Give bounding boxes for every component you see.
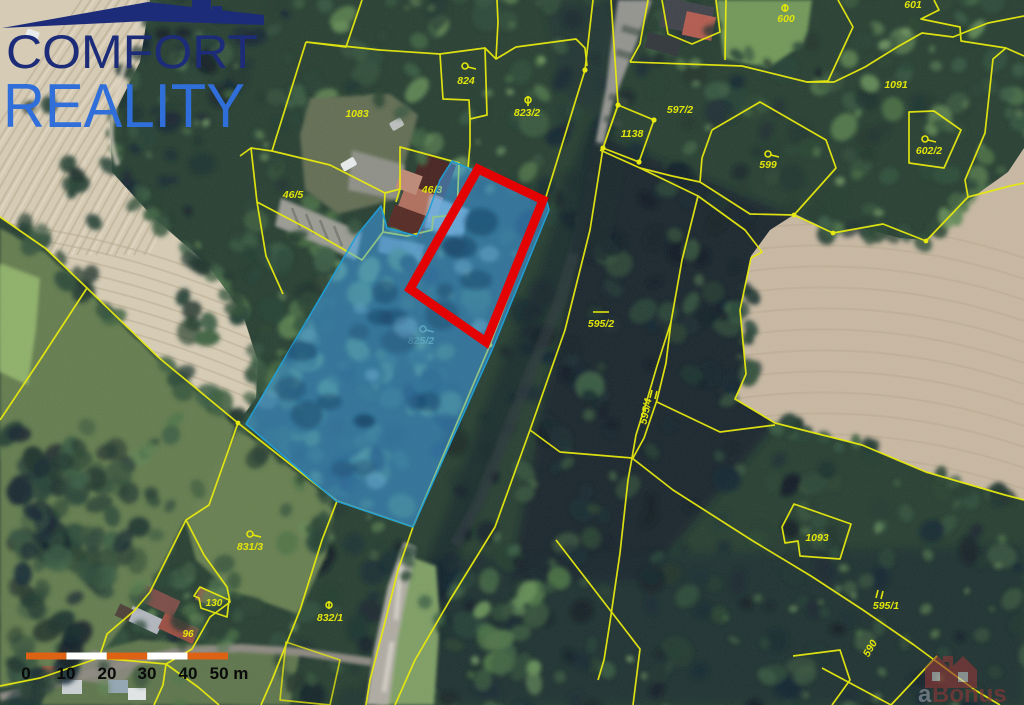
svg-text:1083: 1083 [345,108,369,120]
svg-text:Bonus: Bonus [932,681,1007,705]
svg-text:50 m: 50 m [210,664,249,683]
svg-text:20: 20 [98,664,117,683]
svg-text:599: 599 [759,159,777,171]
svg-text:REALITY: REALITY [3,72,245,141]
svg-text:600: 600 [777,13,795,25]
svg-text:1093: 1093 [805,532,829,544]
svg-text:30: 30 [138,664,157,683]
svg-text:832/1: 832/1 [317,612,343,624]
svg-text:1138: 1138 [621,128,644,140]
svg-text:597/2: 597/2 [667,104,693,116]
svg-text:40: 40 [179,664,198,683]
svg-text:0: 0 [21,664,30,683]
svg-text:831/3: 831/3 [237,541,263,553]
svg-text:130: 130 [206,598,223,609]
svg-text:824: 824 [457,75,475,87]
svg-text:823/2: 823/2 [514,107,540,119]
svg-text:a: a [918,681,932,705]
svg-text:46/5: 46/5 [282,189,304,201]
svg-text:1091: 1091 [884,79,908,91]
svg-text:COMFORT: COMFORT [6,25,258,78]
svg-text:595/2: 595/2 [588,318,614,330]
svg-text:595/1: 595/1 [873,600,899,612]
svg-text:96: 96 [182,629,194,640]
svg-text:602/2: 602/2 [916,145,942,157]
svg-text:10: 10 [57,664,76,683]
svg-text:601: 601 [904,0,922,11]
